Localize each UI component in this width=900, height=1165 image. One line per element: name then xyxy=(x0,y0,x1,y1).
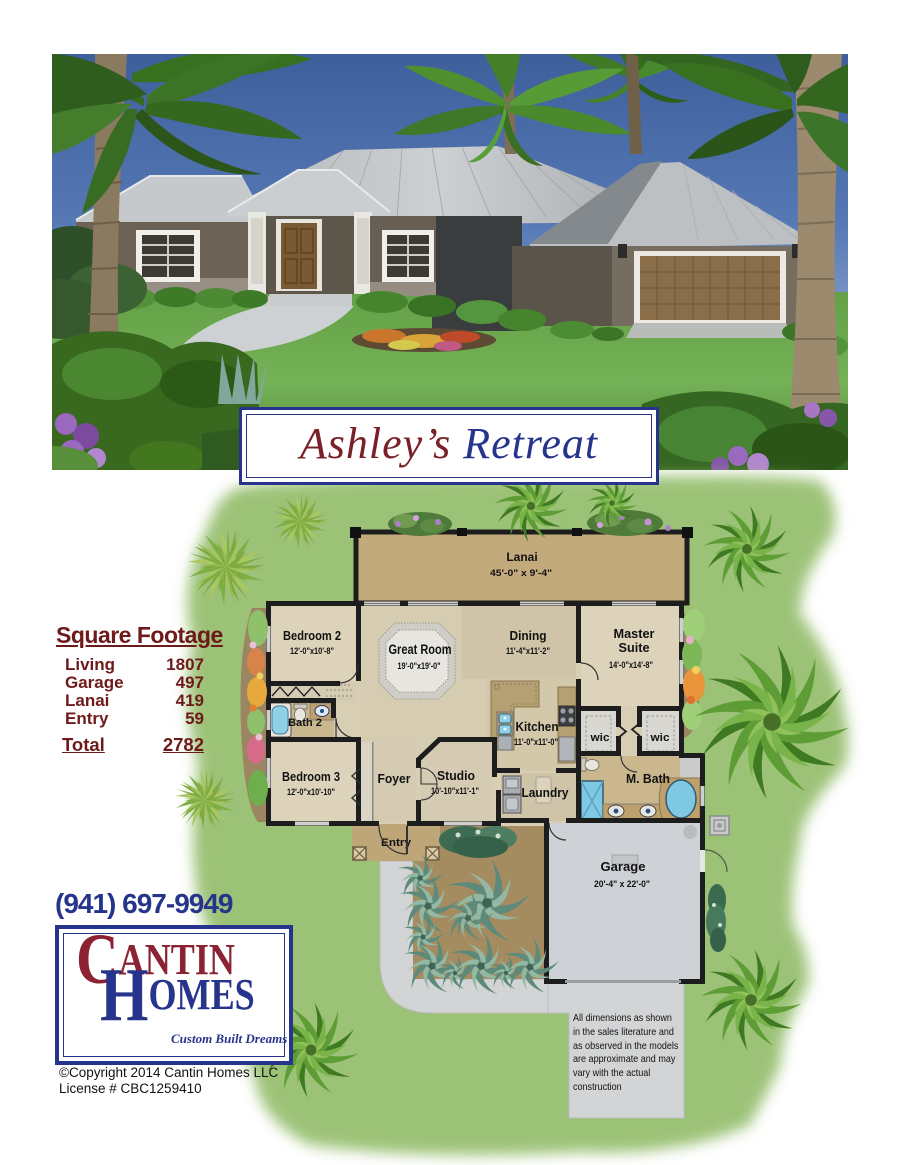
svg-text:11'-4"x11'-2": 11'-4"x11'-2" xyxy=(506,646,550,656)
svg-text:20'-4" x 22'-0": 20'-4" x 22'-0" xyxy=(594,879,650,890)
svg-text:wic: wic xyxy=(589,732,609,744)
svg-text:Kitchen: Kitchen xyxy=(516,720,559,734)
svg-text:Laundry: Laundry xyxy=(522,786,569,800)
svg-text:Suite: Suite xyxy=(619,641,650,655)
svg-text:14'-0"x14'-8": 14'-0"x14'-8" xyxy=(609,660,653,670)
svg-text:Bath 2: Bath 2 xyxy=(288,717,322,729)
svg-text:45'-0" x 9'-4": 45'-0" x 9'-4" xyxy=(490,568,552,579)
svg-text:12'-0"x10'-10": 12'-0"x10'-10" xyxy=(287,787,335,797)
svg-text:Master: Master xyxy=(614,627,655,641)
svg-text:Bedroom 3: Bedroom 3 xyxy=(282,770,340,784)
svg-text:Garage: Garage xyxy=(601,859,646,874)
svg-text:Foyer: Foyer xyxy=(378,772,411,786)
svg-text:19'-0"x19'-0": 19'-0"x19'-0" xyxy=(398,661,441,672)
svg-text:Bedroom 2: Bedroom 2 xyxy=(283,629,341,643)
svg-text:wic: wic xyxy=(649,732,669,744)
svg-text:Lanai: Lanai xyxy=(506,550,537,564)
svg-text:12'-0"x10'-8": 12'-0"x10'-8" xyxy=(290,646,334,656)
svg-text:M. Bath: M. Bath xyxy=(626,772,670,786)
svg-text:Studio: Studio xyxy=(437,769,475,783)
svg-text:Great Room: Great Room xyxy=(389,642,452,657)
svg-text:10'-10"x11'-1": 10'-10"x11'-1" xyxy=(431,786,479,796)
svg-text:Dining: Dining xyxy=(510,629,547,643)
svg-text:11'-0"x11'-0": 11'-0"x11'-0" xyxy=(514,737,558,747)
